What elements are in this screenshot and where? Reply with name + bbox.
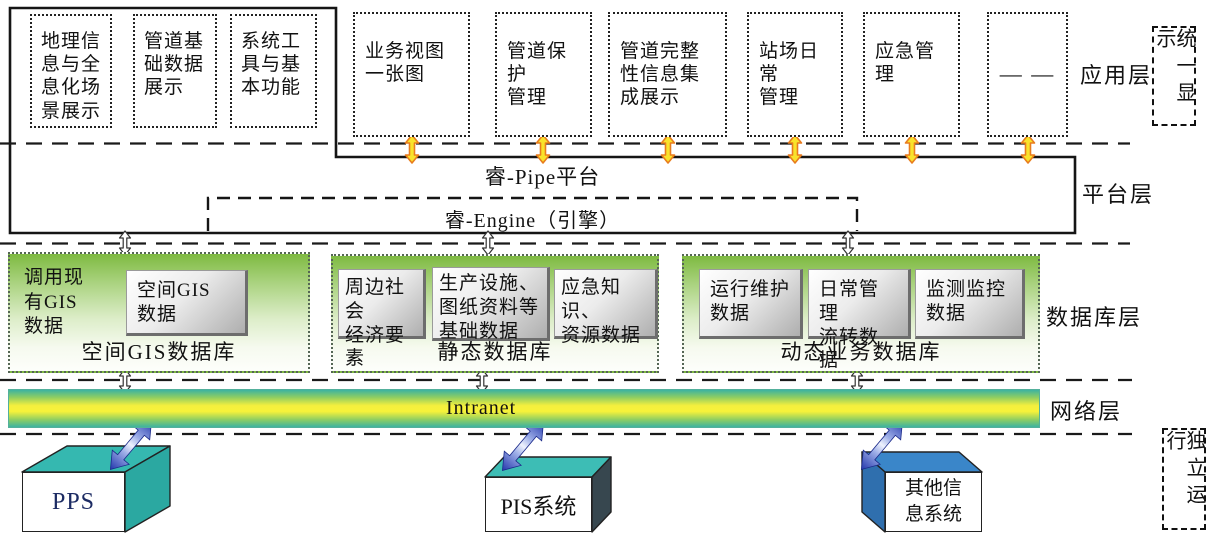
pis-system-box: PIS系统 <box>485 477 592 532</box>
independent-run-label: 独立运行 <box>1164 430 1204 528</box>
architecture-diagram: 地理信 息与全 息化场 景展示 管道基 础数据 展示 系统工 具与基 本功能 业… <box>0 0 1222 542</box>
app-module-box: 管道保护 管理 <box>495 12 592 137</box>
pipe-platform-label: 睿-Pipe平台 <box>10 161 1075 191</box>
database-name: 静态数据库 <box>333 336 657 366</box>
app-module-box: 站场日常 管理 <box>747 12 843 137</box>
updown-arrow-icon <box>483 231 494 255</box>
engine-label: 睿-Engine（引擎） <box>208 204 857 233</box>
layer-label-network: 网络层 <box>1050 394 1122 426</box>
intranet-label: Intranet <box>446 397 516 420</box>
db-item-box: 生产设施、 图纸资料等 基础数据 <box>432 267 550 341</box>
db-item-box: 周边社会 经济要素 <box>338 269 426 339</box>
exchange-arrow-icon <box>1022 135 1035 163</box>
unified-display-label: 统一显示 <box>1154 28 1194 124</box>
db-item-box: 运行维护 数据 <box>699 269 803 339</box>
spatial-gis-database-box: 调用现 有GIS 数据 空间GIS 数据 空间GIS数据库 <box>8 252 310 373</box>
independent-run-box: 独立运行 <box>1162 428 1206 530</box>
layer-label-platform: 平台层 <box>1082 177 1154 209</box>
exchange-arrow-icon <box>537 135 550 163</box>
app-module-box: 系统工 具与基 本功能 <box>230 14 317 128</box>
db-item-box: 监测监控 数据 <box>915 269 1025 339</box>
app-module-box: 地理信 息与全 息化场 景展示 <box>30 14 112 128</box>
dynamic-database-box: 运行维护 数据 日常管理 流转数据 监测监控 数据 动态业务数据库 <box>682 254 1040 373</box>
app-module-box-ellipsis: — — <box>987 12 1068 137</box>
gis-note: 调用现 有GIS 数据 <box>24 266 114 340</box>
exchange-arrow-icon <box>906 135 919 163</box>
layer-label-application: 应用层 <box>1080 58 1152 90</box>
intranet-bus <box>8 389 1040 428</box>
database-name: 动态业务数据库 <box>684 336 1038 366</box>
app-module-box: 管道完整 性信息集 成展示 <box>608 12 727 137</box>
exchange-arrow-icon <box>406 135 419 163</box>
unified-display-box: 统一显示 <box>1152 26 1196 126</box>
exchange-arrow-icon <box>789 135 802 163</box>
layer-label-database: 数据库层 <box>1046 300 1142 332</box>
db-item-box: 空间GIS 数据 <box>126 270 248 336</box>
exchange-arrow-icon <box>662 135 675 163</box>
pps-system-box: PPS <box>22 472 125 532</box>
db-item-box: 应急知识、 资源数据 <box>554 269 658 339</box>
app-module-box: 管道基 础数据 展示 <box>133 14 217 128</box>
app-module-box: 应急管理 <box>863 12 960 137</box>
static-database-box: 周边社会 经济要素 生产设施、 图纸资料等 基础数据 应急知识、 资源数据 静态… <box>331 254 659 373</box>
app-module-box: 业务视图 一张图 <box>353 12 470 137</box>
other-system-box: 其他信 息系统 <box>885 472 982 532</box>
db-item-box: 日常管理 流转数据 <box>808 269 911 339</box>
database-name: 空间GIS数据库 <box>10 336 308 366</box>
